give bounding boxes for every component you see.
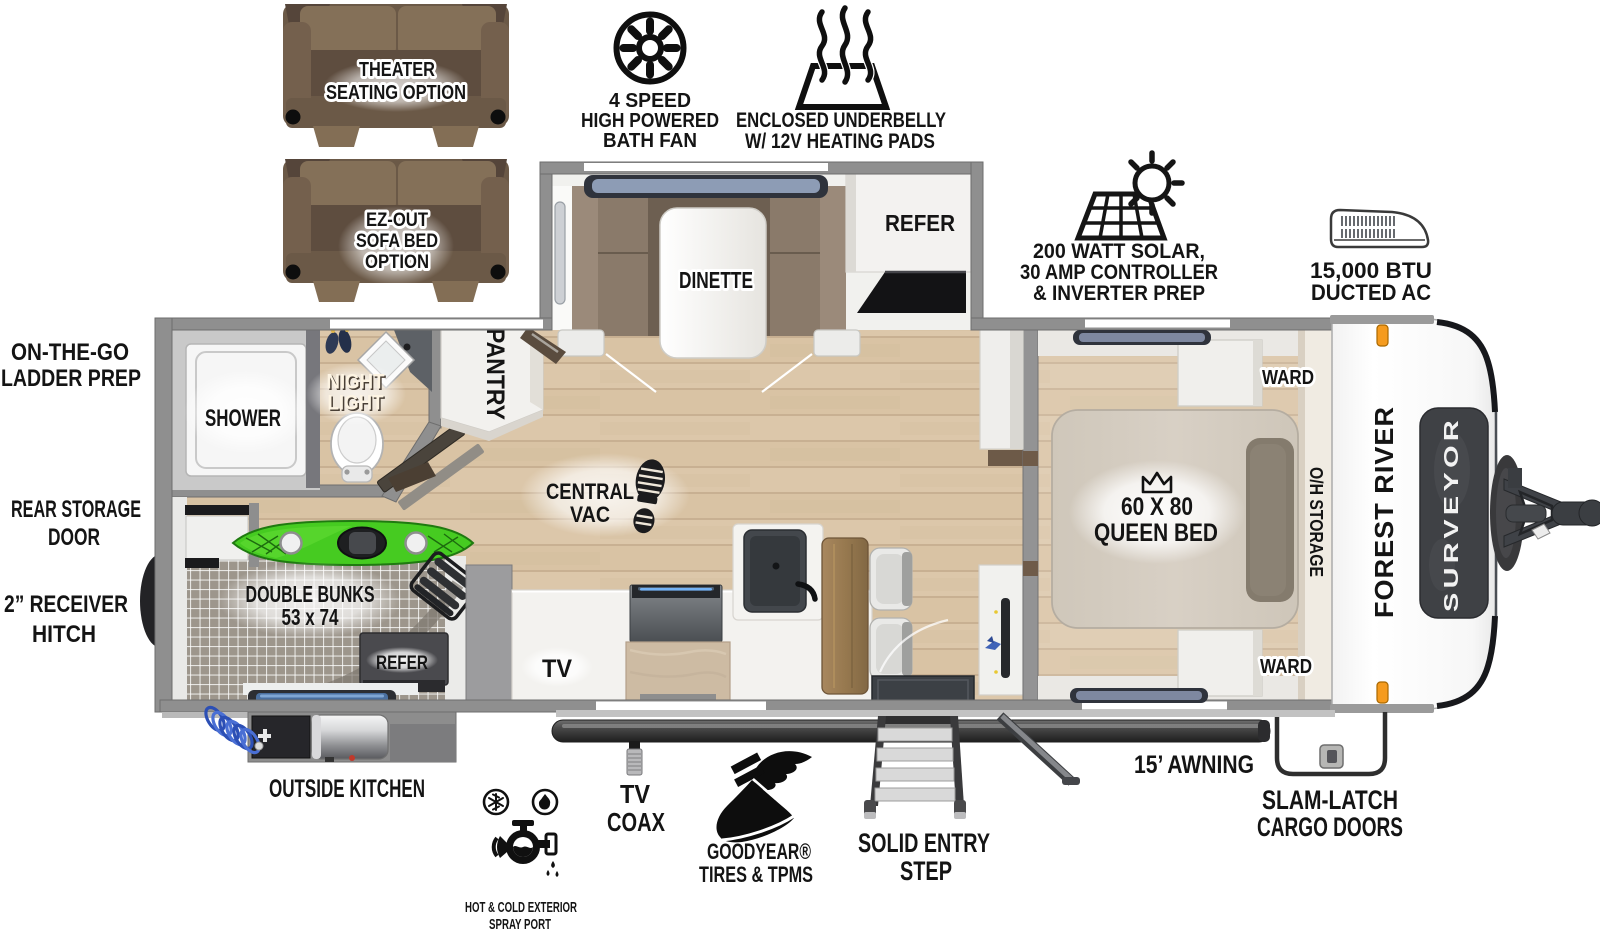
svg-text:4 SPEED: 4 SPEED xyxy=(609,90,691,112)
svg-text:CENTRAL: CENTRAL xyxy=(546,479,634,504)
svg-text:PANTRY: PANTRY xyxy=(481,328,509,420)
svg-text:2” RECEIVER: 2” RECEIVER xyxy=(4,591,128,618)
svg-text:15’ AWNING: 15’ AWNING xyxy=(1134,751,1254,779)
svg-text:TV: TV xyxy=(542,655,572,683)
svg-text:200 WATT SOLAR,: 200 WATT SOLAR, xyxy=(1033,240,1205,263)
svg-text:SLAM-LATCH: SLAM-LATCH xyxy=(1262,785,1398,815)
svg-text:QUEEN BED: QUEEN BED xyxy=(1094,519,1218,547)
svg-text:SOLID ENTRY: SOLID ENTRY xyxy=(858,828,990,858)
svg-text:53 x 74: 53 x 74 xyxy=(282,604,339,630)
svg-text:REAR STORAGE: REAR STORAGE xyxy=(11,496,141,523)
svg-text:ON-THE-GO: ON-THE-GO xyxy=(11,339,129,366)
svg-text:W/ 12V HEATING PADS: W/ 12V HEATING PADS xyxy=(745,130,935,153)
svg-text:THEATER: THEATER xyxy=(359,59,435,81)
svg-text:DINETTE: DINETTE xyxy=(679,267,753,293)
svg-text:SEATING OPTION: SEATING OPTION xyxy=(326,82,466,104)
svg-text:SOFA BED: SOFA BED xyxy=(356,231,438,252)
svg-text:SHOWER: SHOWER xyxy=(205,405,281,432)
svg-text:LADDER PREP: LADDER PREP xyxy=(1,365,141,392)
svg-text:CARGO DOORS: CARGO DOORS xyxy=(1257,812,1403,842)
svg-text:NIGHT: NIGHT xyxy=(327,371,385,394)
svg-text:ENCLOSED UNDERBELLY: ENCLOSED UNDERBELLY xyxy=(736,109,946,132)
svg-text:STEP: STEP xyxy=(900,856,952,886)
svg-text:REFER: REFER xyxy=(376,653,428,674)
svg-text:30 AMP CONTROLLER: 30 AMP CONTROLLER xyxy=(1020,261,1218,284)
svg-text:HITCH: HITCH xyxy=(32,621,96,648)
svg-text:OPTION: OPTION xyxy=(365,252,429,273)
svg-text:FOREST RIVER: FOREST RIVER xyxy=(1369,406,1399,618)
svg-text:OUTSIDE KITCHEN: OUTSIDE KITCHEN xyxy=(269,775,425,803)
svg-text:60 X 80: 60 X 80 xyxy=(1121,493,1193,521)
svg-text:SPRAY PORT: SPRAY PORT xyxy=(489,917,551,930)
svg-text:& INVERTER PREP: & INVERTER PREP xyxy=(1033,282,1205,305)
svg-text:SURVEYOR: SURVEYOR xyxy=(1441,416,1463,612)
svg-text:HIGH POWERED: HIGH POWERED xyxy=(581,110,719,132)
svg-text:WARD: WARD xyxy=(1260,656,1312,678)
svg-text:BATH FAN: BATH FAN xyxy=(603,130,697,152)
svg-text:DOOR: DOOR xyxy=(48,524,100,551)
svg-text:VAC: VAC xyxy=(570,502,610,527)
svg-text:LIGHT: LIGHT xyxy=(328,392,384,415)
svg-text:HOT & COLD EXTERIOR: HOT & COLD EXTERIOR xyxy=(465,900,577,916)
svg-text:EZ-OUT: EZ-OUT xyxy=(366,210,428,231)
svg-text:DUCTED AC: DUCTED AC xyxy=(1311,280,1431,305)
svg-text:COAX: COAX xyxy=(607,807,666,837)
svg-text:TIRES & TPMS: TIRES & TPMS xyxy=(699,862,813,887)
svg-text:TV: TV xyxy=(620,779,651,809)
svg-text:GOODYEAR®: GOODYEAR® xyxy=(707,839,811,864)
svg-text:O/H STORAGE: O/H STORAGE xyxy=(1306,467,1326,577)
svg-text:WARD: WARD xyxy=(1262,367,1314,389)
svg-text:REFER: REFER xyxy=(885,210,955,236)
